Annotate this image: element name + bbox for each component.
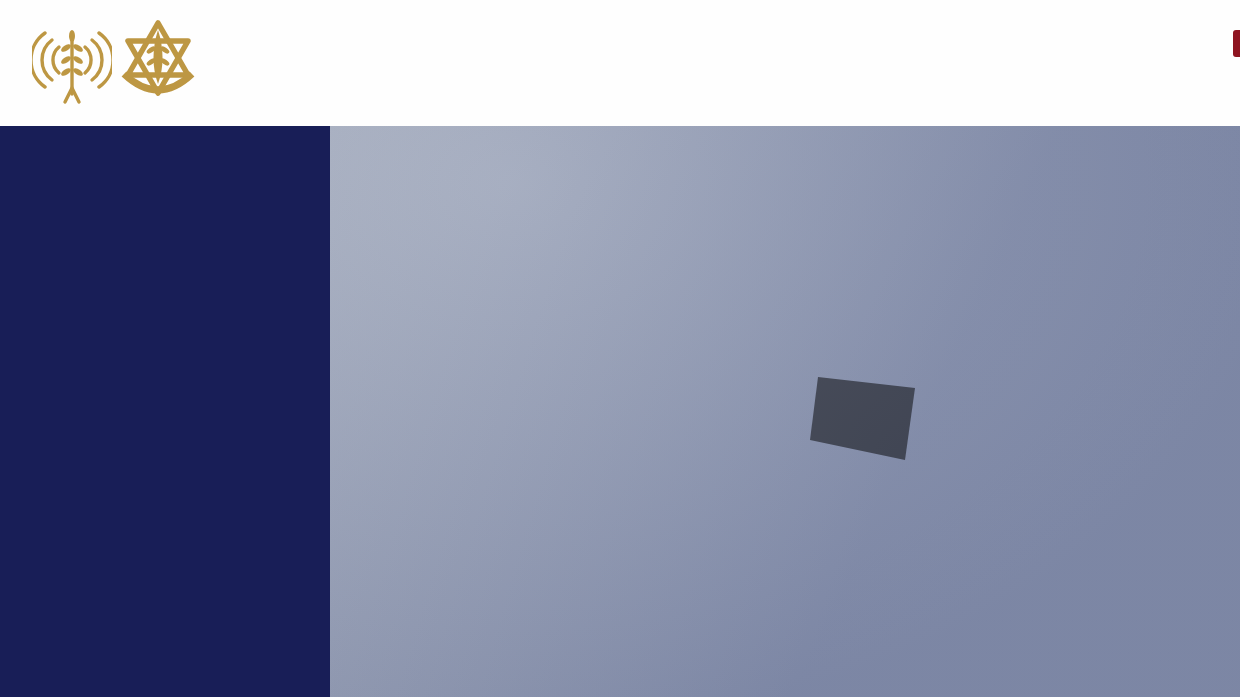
map-annotations <box>330 126 1240 697</box>
satellite-map <box>330 126 1240 697</box>
header-bar <box>0 0 1240 126</box>
white-outlined-building <box>767 292 905 380</box>
logo-group <box>28 14 208 114</box>
clipped-word-fragment <box>1233 30 1240 57</box>
red-target-building <box>810 377 915 460</box>
warning-poster <box>0 0 1240 697</box>
broadcast-tower-olive-branch-icon <box>32 22 112 108</box>
idf-star-emblem-icon <box>112 16 204 112</box>
warning-sidebar <box>0 126 330 697</box>
